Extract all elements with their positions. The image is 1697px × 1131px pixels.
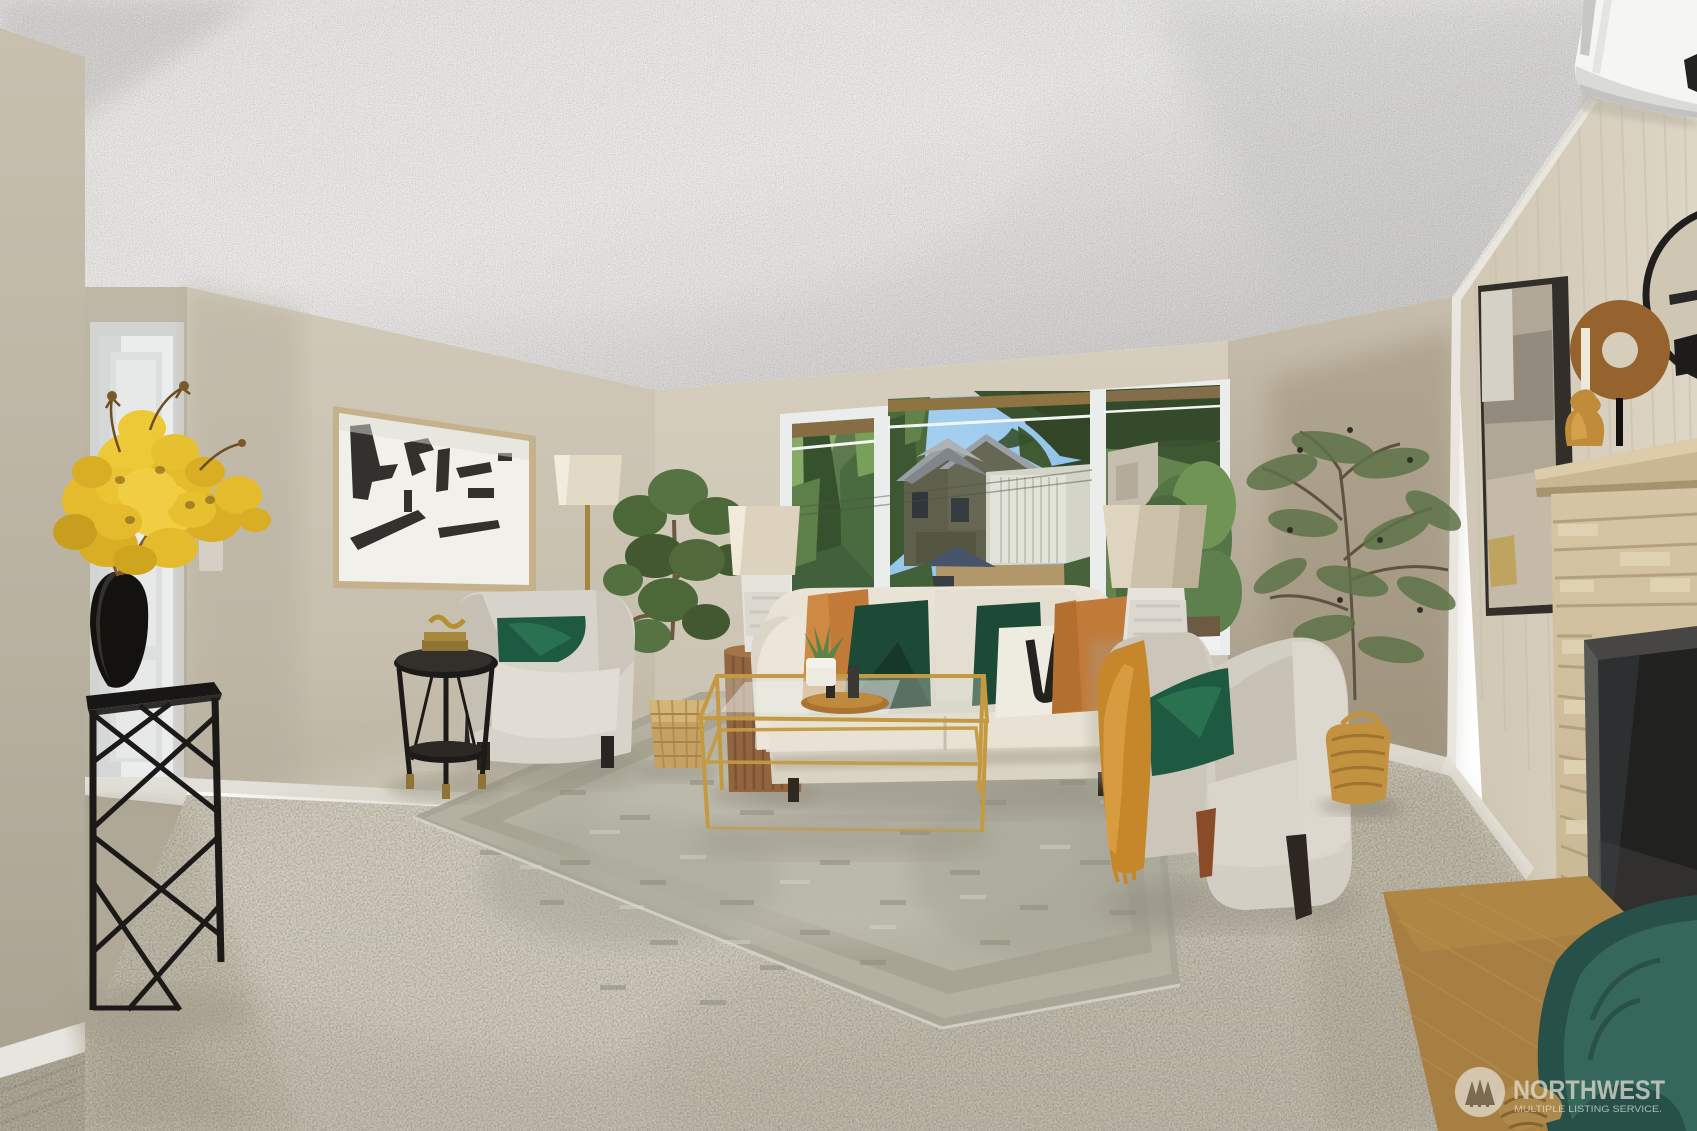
svg-text:MULTIPLE LISTING SERVICE.: MULTIPLE LISTING SERVICE. bbox=[1514, 1104, 1662, 1115]
svg-text:NORTHWEST: NORTHWEST bbox=[1513, 1075, 1665, 1105]
